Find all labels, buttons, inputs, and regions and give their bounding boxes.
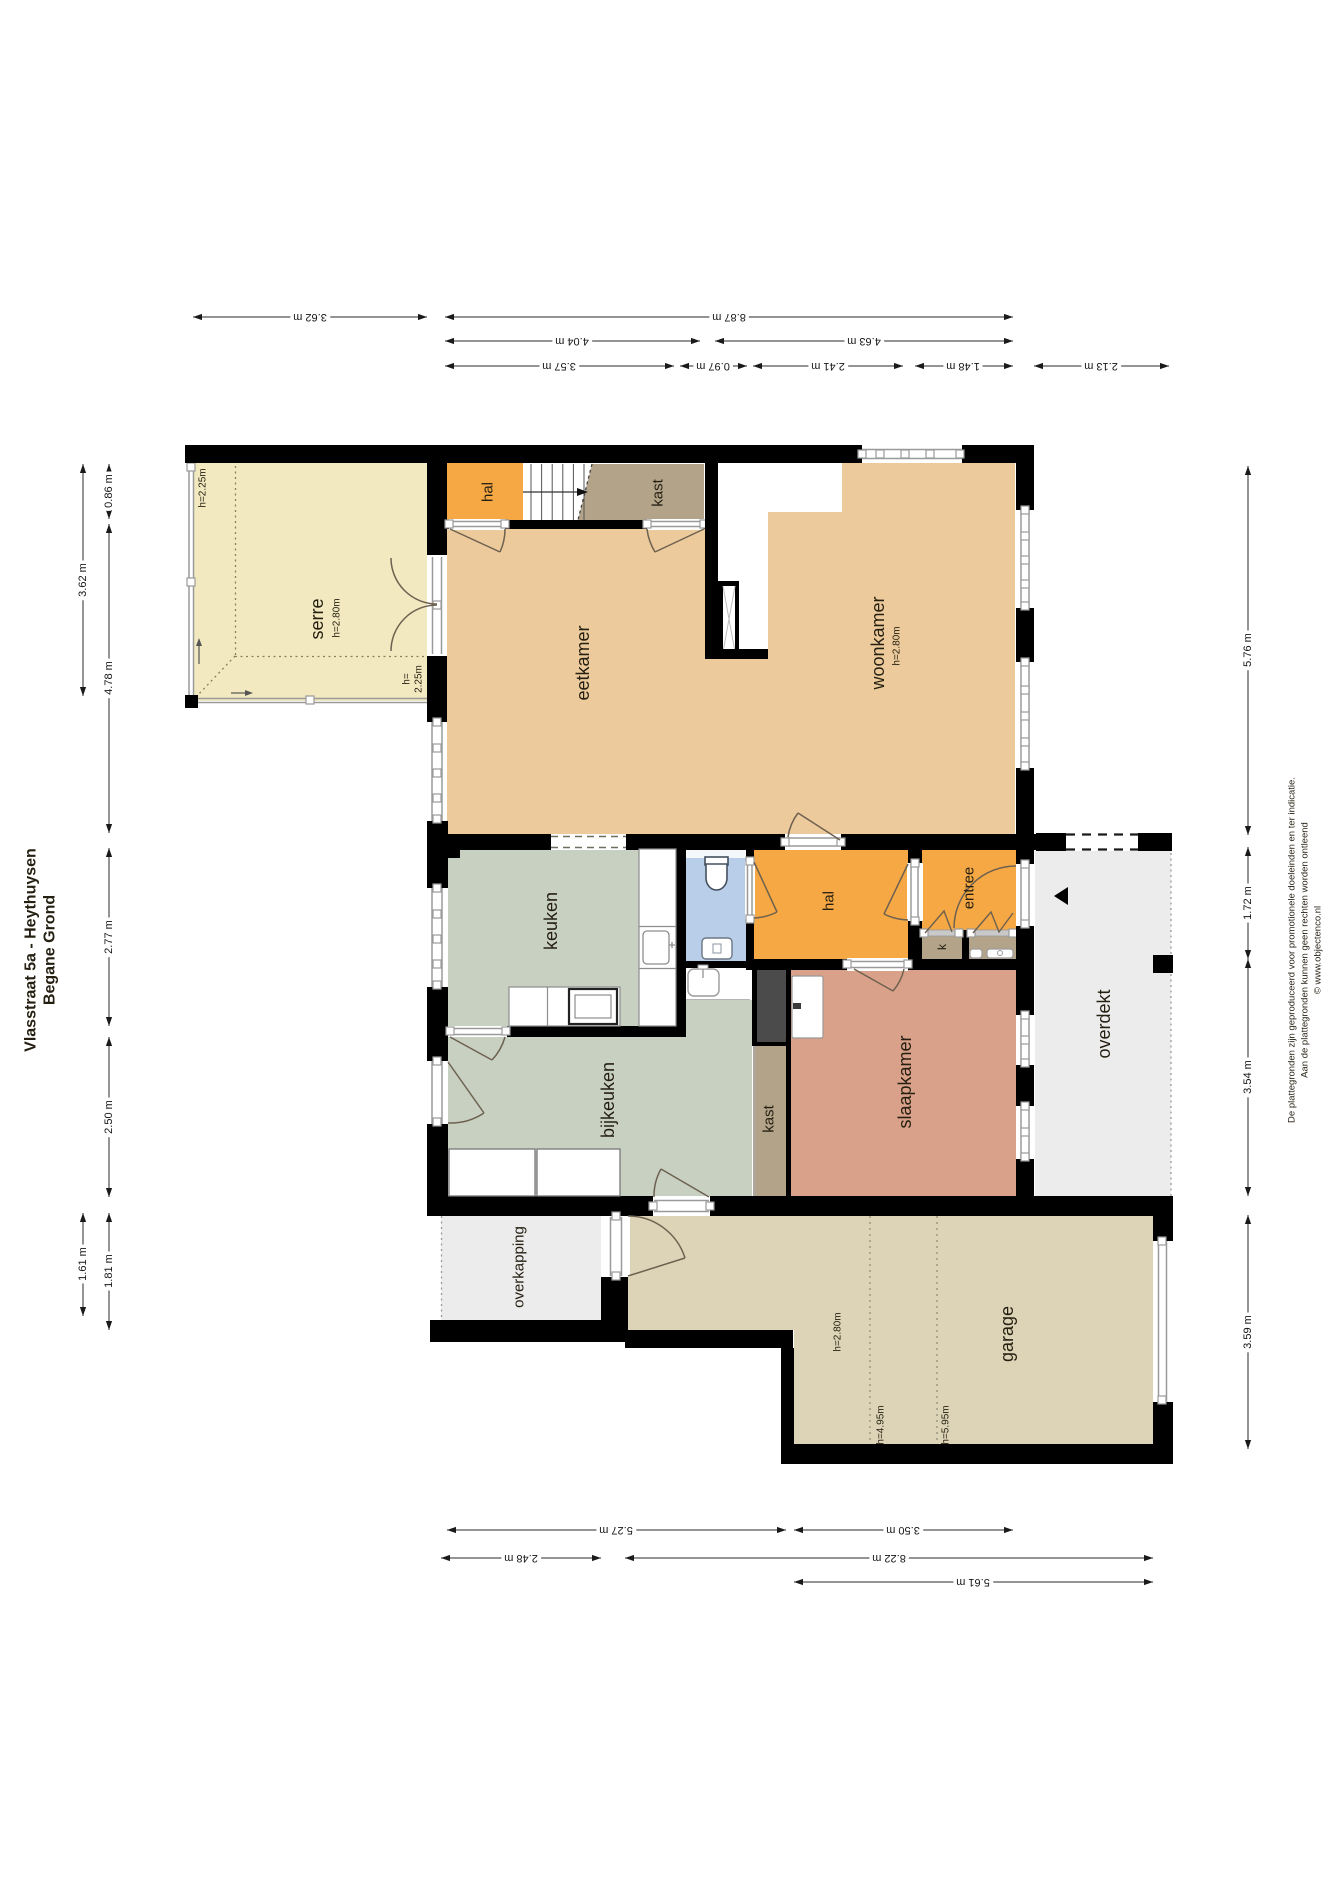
svg-text:0.97 m: 0.97 m xyxy=(696,360,730,372)
svg-text:kast: kast xyxy=(761,1104,778,1132)
svg-text:2.41 m: 2.41 m xyxy=(811,360,845,372)
svg-text:3.57 m: 3.57 m xyxy=(542,360,576,372)
svg-text:keuken: keuken xyxy=(541,892,561,950)
svg-text:hal: hal xyxy=(821,891,838,911)
svg-text:1.61 m: 1.61 m xyxy=(77,1247,89,1281)
svg-text:8.22 m: 8.22 m xyxy=(872,1552,906,1564)
svg-text:4.63 m: 4.63 m xyxy=(847,335,881,347)
svg-text:3.62 m: 3.62 m xyxy=(293,311,327,323)
svg-text:© www.objectenco.nl: © www.objectenco.nl xyxy=(1313,906,1324,994)
svg-text:3.54 m: 3.54 m xyxy=(1242,1060,1254,1094)
svg-text:serre: serre xyxy=(307,598,327,639)
svg-text:h=2.80m: h=2.80m xyxy=(892,626,903,665)
svg-text:4.04 m: 4.04 m xyxy=(555,335,589,347)
svg-text:5.76 m: 5.76 m xyxy=(1242,633,1254,667)
svg-text:h=2.80m: h=2.80m xyxy=(332,598,343,637)
svg-text:eetkamer: eetkamer xyxy=(573,625,593,700)
svg-text:Aan de plattegronden kunnen ge: Aan de plattegronden kunnen geen rechten… xyxy=(1300,822,1311,1078)
svg-text:2.50 m: 2.50 m xyxy=(103,1100,115,1134)
svg-text:h=2.25m: h=2.25m xyxy=(198,468,209,507)
svg-text:kast: kast xyxy=(650,478,667,506)
svg-text:1.72 m: 1.72 m xyxy=(1242,886,1254,920)
svg-text:h=4.95m: h=4.95m xyxy=(876,1405,887,1444)
svg-text:8.87 m: 8.87 m xyxy=(712,311,746,323)
svg-text:h=2.80m: h=2.80m xyxy=(833,1312,844,1351)
svg-text:h=: h= xyxy=(402,673,413,685)
svg-text:5.61 m: 5.61 m xyxy=(956,1576,990,1588)
svg-text:entree: entree xyxy=(961,867,978,910)
svg-text:0.86 m: 0.86 m xyxy=(103,474,115,508)
svg-text:overkapping: overkapping xyxy=(511,1226,528,1308)
svg-text:h=5.95m: h=5.95m xyxy=(941,1405,952,1444)
svg-text:1.48 m: 1.48 m xyxy=(946,360,980,372)
svg-text:Vlasstraat 5a - Heythuysen: Vlasstraat 5a - Heythuysen xyxy=(23,848,40,1052)
svg-text:overdekt: overdekt xyxy=(1094,989,1114,1058)
svg-text:Begane Grond: Begane Grond xyxy=(42,895,59,1005)
svg-text:3.50 m: 3.50 m xyxy=(886,1524,920,1536)
svg-text:3.59 m: 3.59 m xyxy=(1242,1315,1254,1349)
svg-text:2.25m: 2.25m xyxy=(414,665,425,693)
svg-text:5.27 m: 5.27 m xyxy=(599,1524,633,1536)
svg-text:3.62 m: 3.62 m xyxy=(77,563,89,597)
svg-text:2.13 m: 2.13 m xyxy=(1084,360,1118,372)
svg-text:4.78 m: 4.78 m xyxy=(103,661,115,695)
svg-text:bijkeuken: bijkeuken xyxy=(598,1062,618,1138)
svg-text:woonkamer: woonkamer xyxy=(868,596,888,690)
svg-text:k: k xyxy=(935,943,949,950)
svg-text:hal: hal xyxy=(480,482,497,502)
svg-text:2.48 m: 2.48 m xyxy=(504,1552,538,1564)
svg-text:De plattegronden zijn geproduc: De plattegronden zijn geproduceerd voor … xyxy=(1287,777,1298,1123)
svg-text:slaapkamer: slaapkamer xyxy=(895,1035,915,1128)
svg-text:garage: garage xyxy=(997,1306,1017,1362)
svg-text:2.77 m: 2.77 m xyxy=(103,920,115,954)
svg-text:1.81 m: 1.81 m xyxy=(103,1254,115,1288)
